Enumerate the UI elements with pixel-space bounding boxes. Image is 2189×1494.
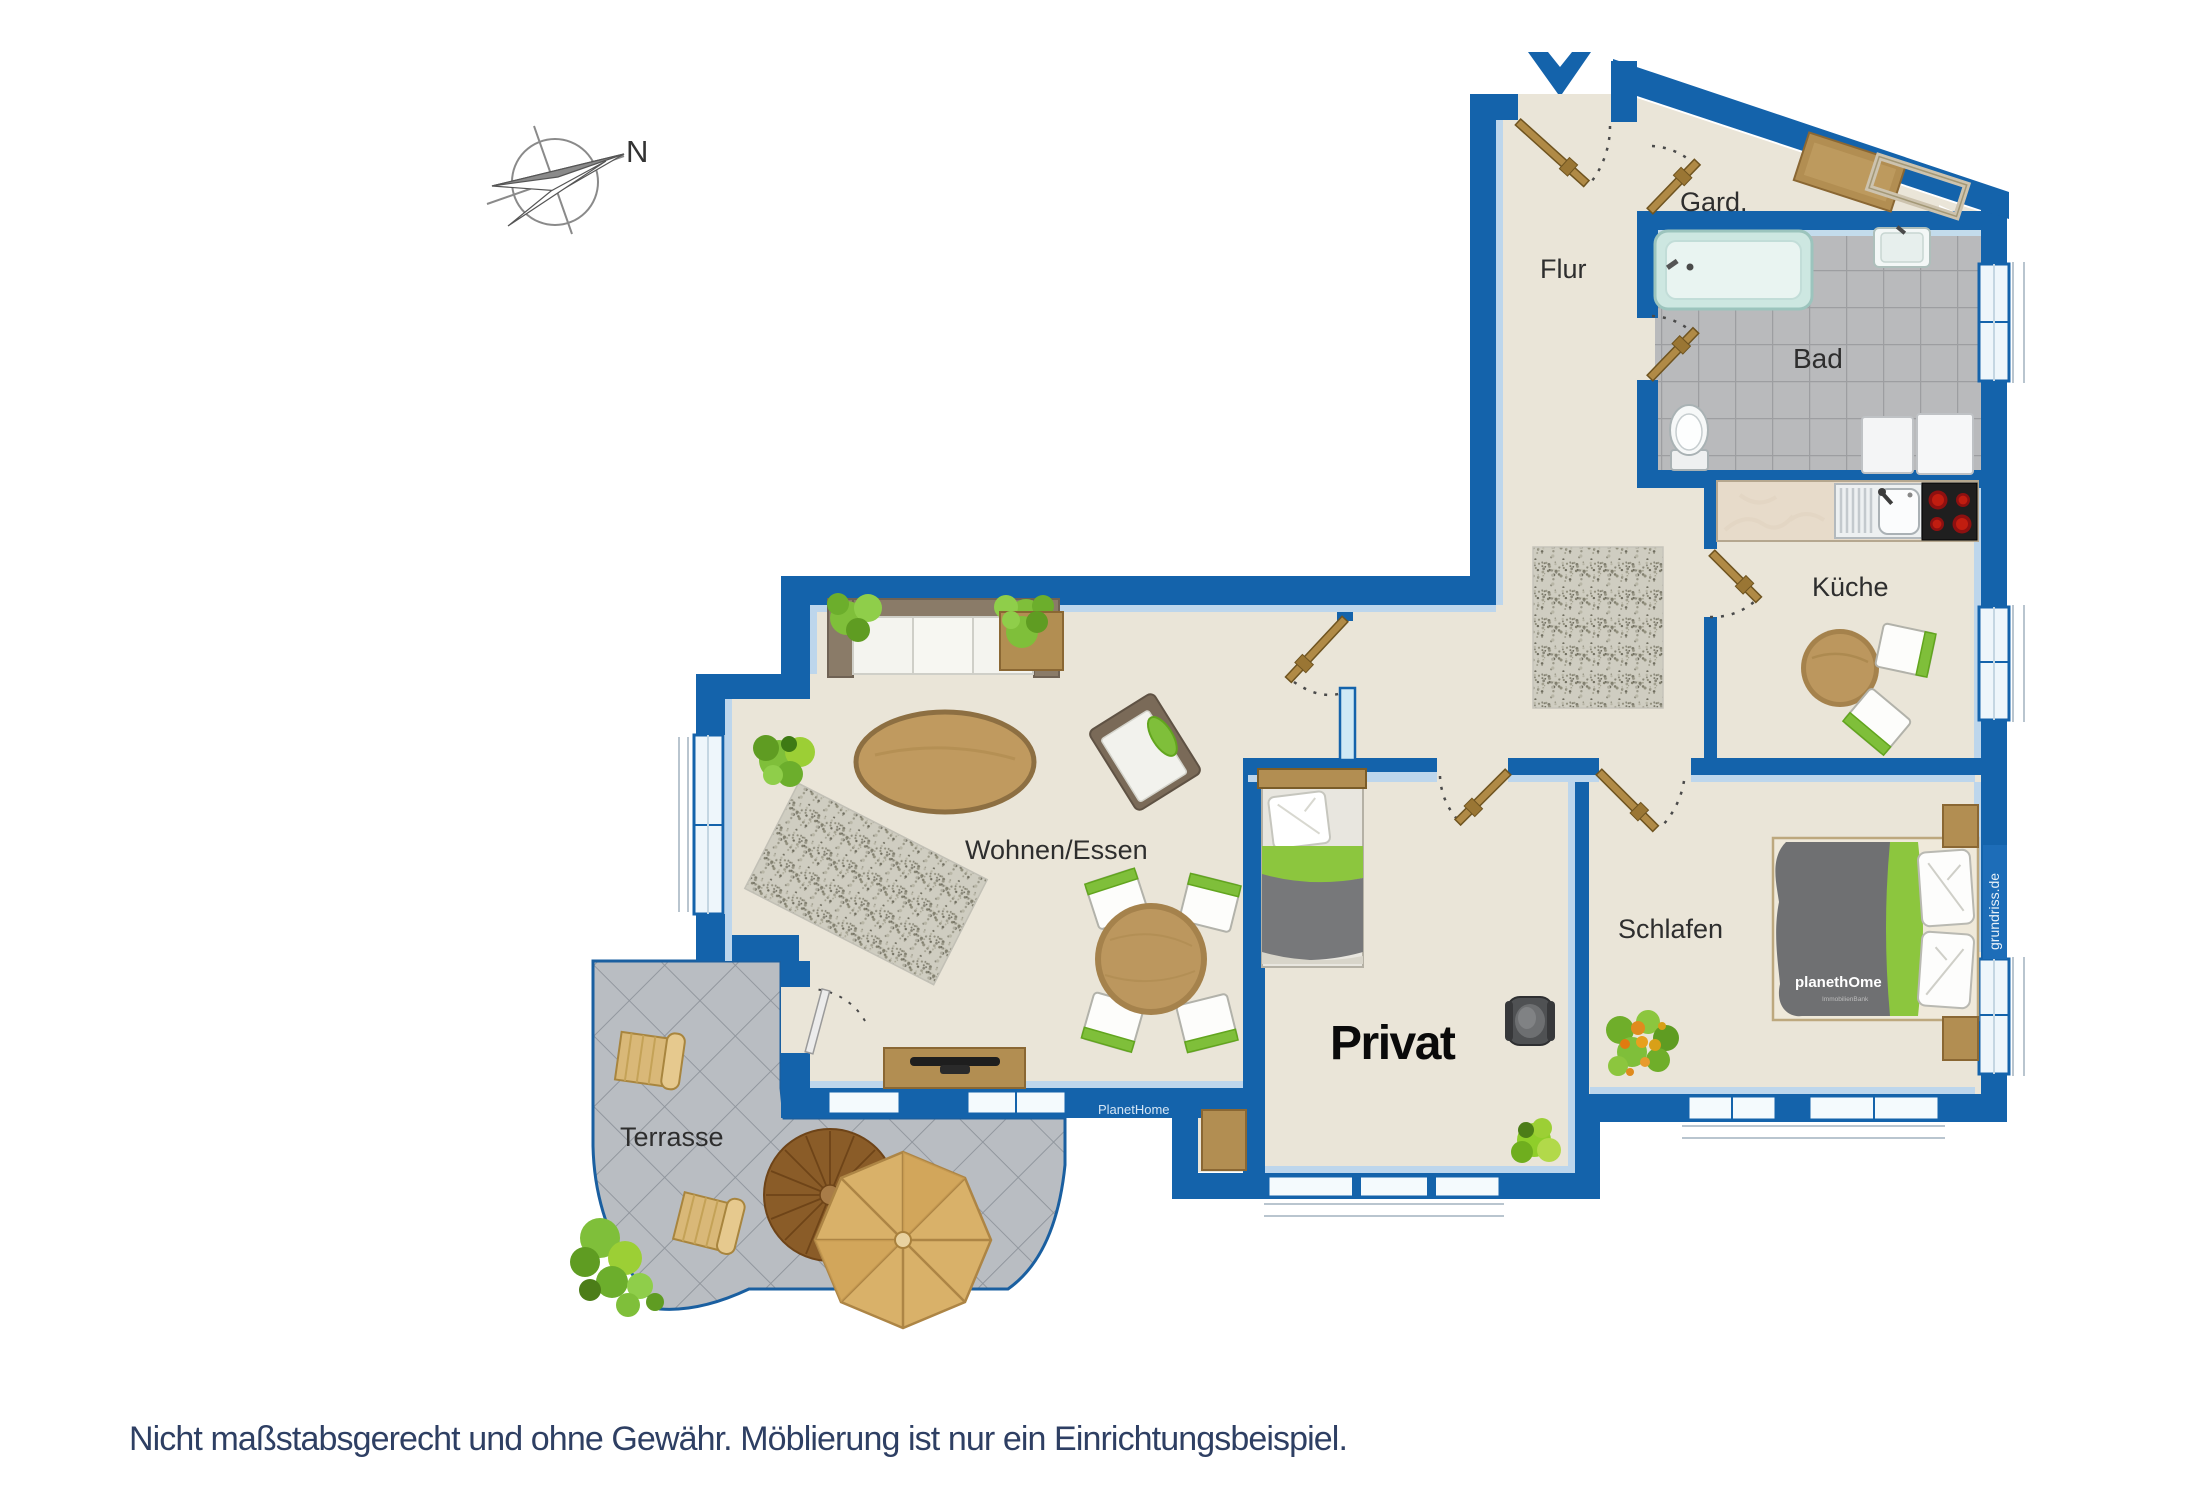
svg-text:Terrasse: Terrasse — [620, 1122, 724, 1152]
svg-text:Flur: Flur — [1540, 254, 1587, 284]
svg-text:Gard.: Gard. — [1680, 187, 1748, 217]
svg-text:Schlafen: Schlafen — [1618, 914, 1723, 944]
svg-text:Privat: Privat — [1330, 1017, 1456, 1070]
svg-text:PlanetHome: PlanetHome — [1098, 1102, 1170, 1117]
svg-text:Bad: Bad — [1793, 343, 1843, 374]
svg-text:Nicht maßstabsgerecht und ohne: Nicht maßstabsgerecht und ohne Gewähr. M… — [129, 1420, 1347, 1458]
svg-text:Küche: Küche — [1812, 572, 1889, 602]
svg-text:grundriss.de: grundriss.de — [1986, 873, 2002, 950]
svg-text:planethOme: planethOme — [1795, 974, 1882, 991]
svg-text:N: N — [626, 134, 648, 169]
svg-text:ImmobilienBank: ImmobilienBank — [1822, 996, 1869, 1003]
svg-text:Wohnen/Essen: Wohnen/Essen — [965, 835, 1148, 865]
